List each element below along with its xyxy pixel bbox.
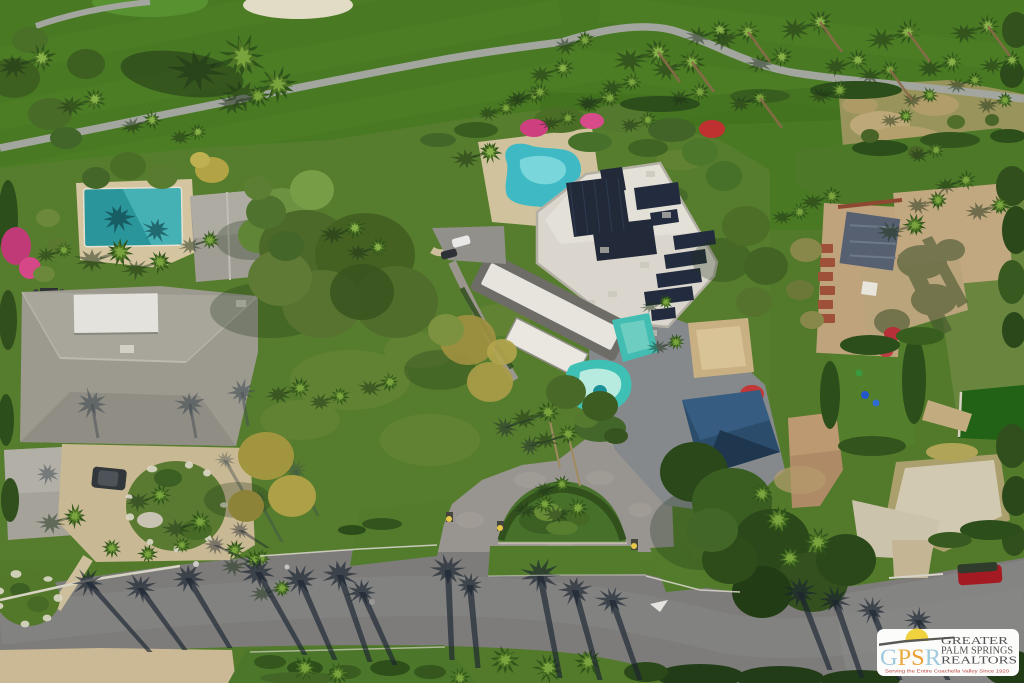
svg-text:GPSR: GPSR — [880, 645, 942, 670]
svg-text:Serving the Entire Coachella V: Serving the Entire Coachella Valley Sinc… — [885, 669, 1010, 674]
svg-text:REALTORS: REALTORS — [941, 655, 1017, 667]
